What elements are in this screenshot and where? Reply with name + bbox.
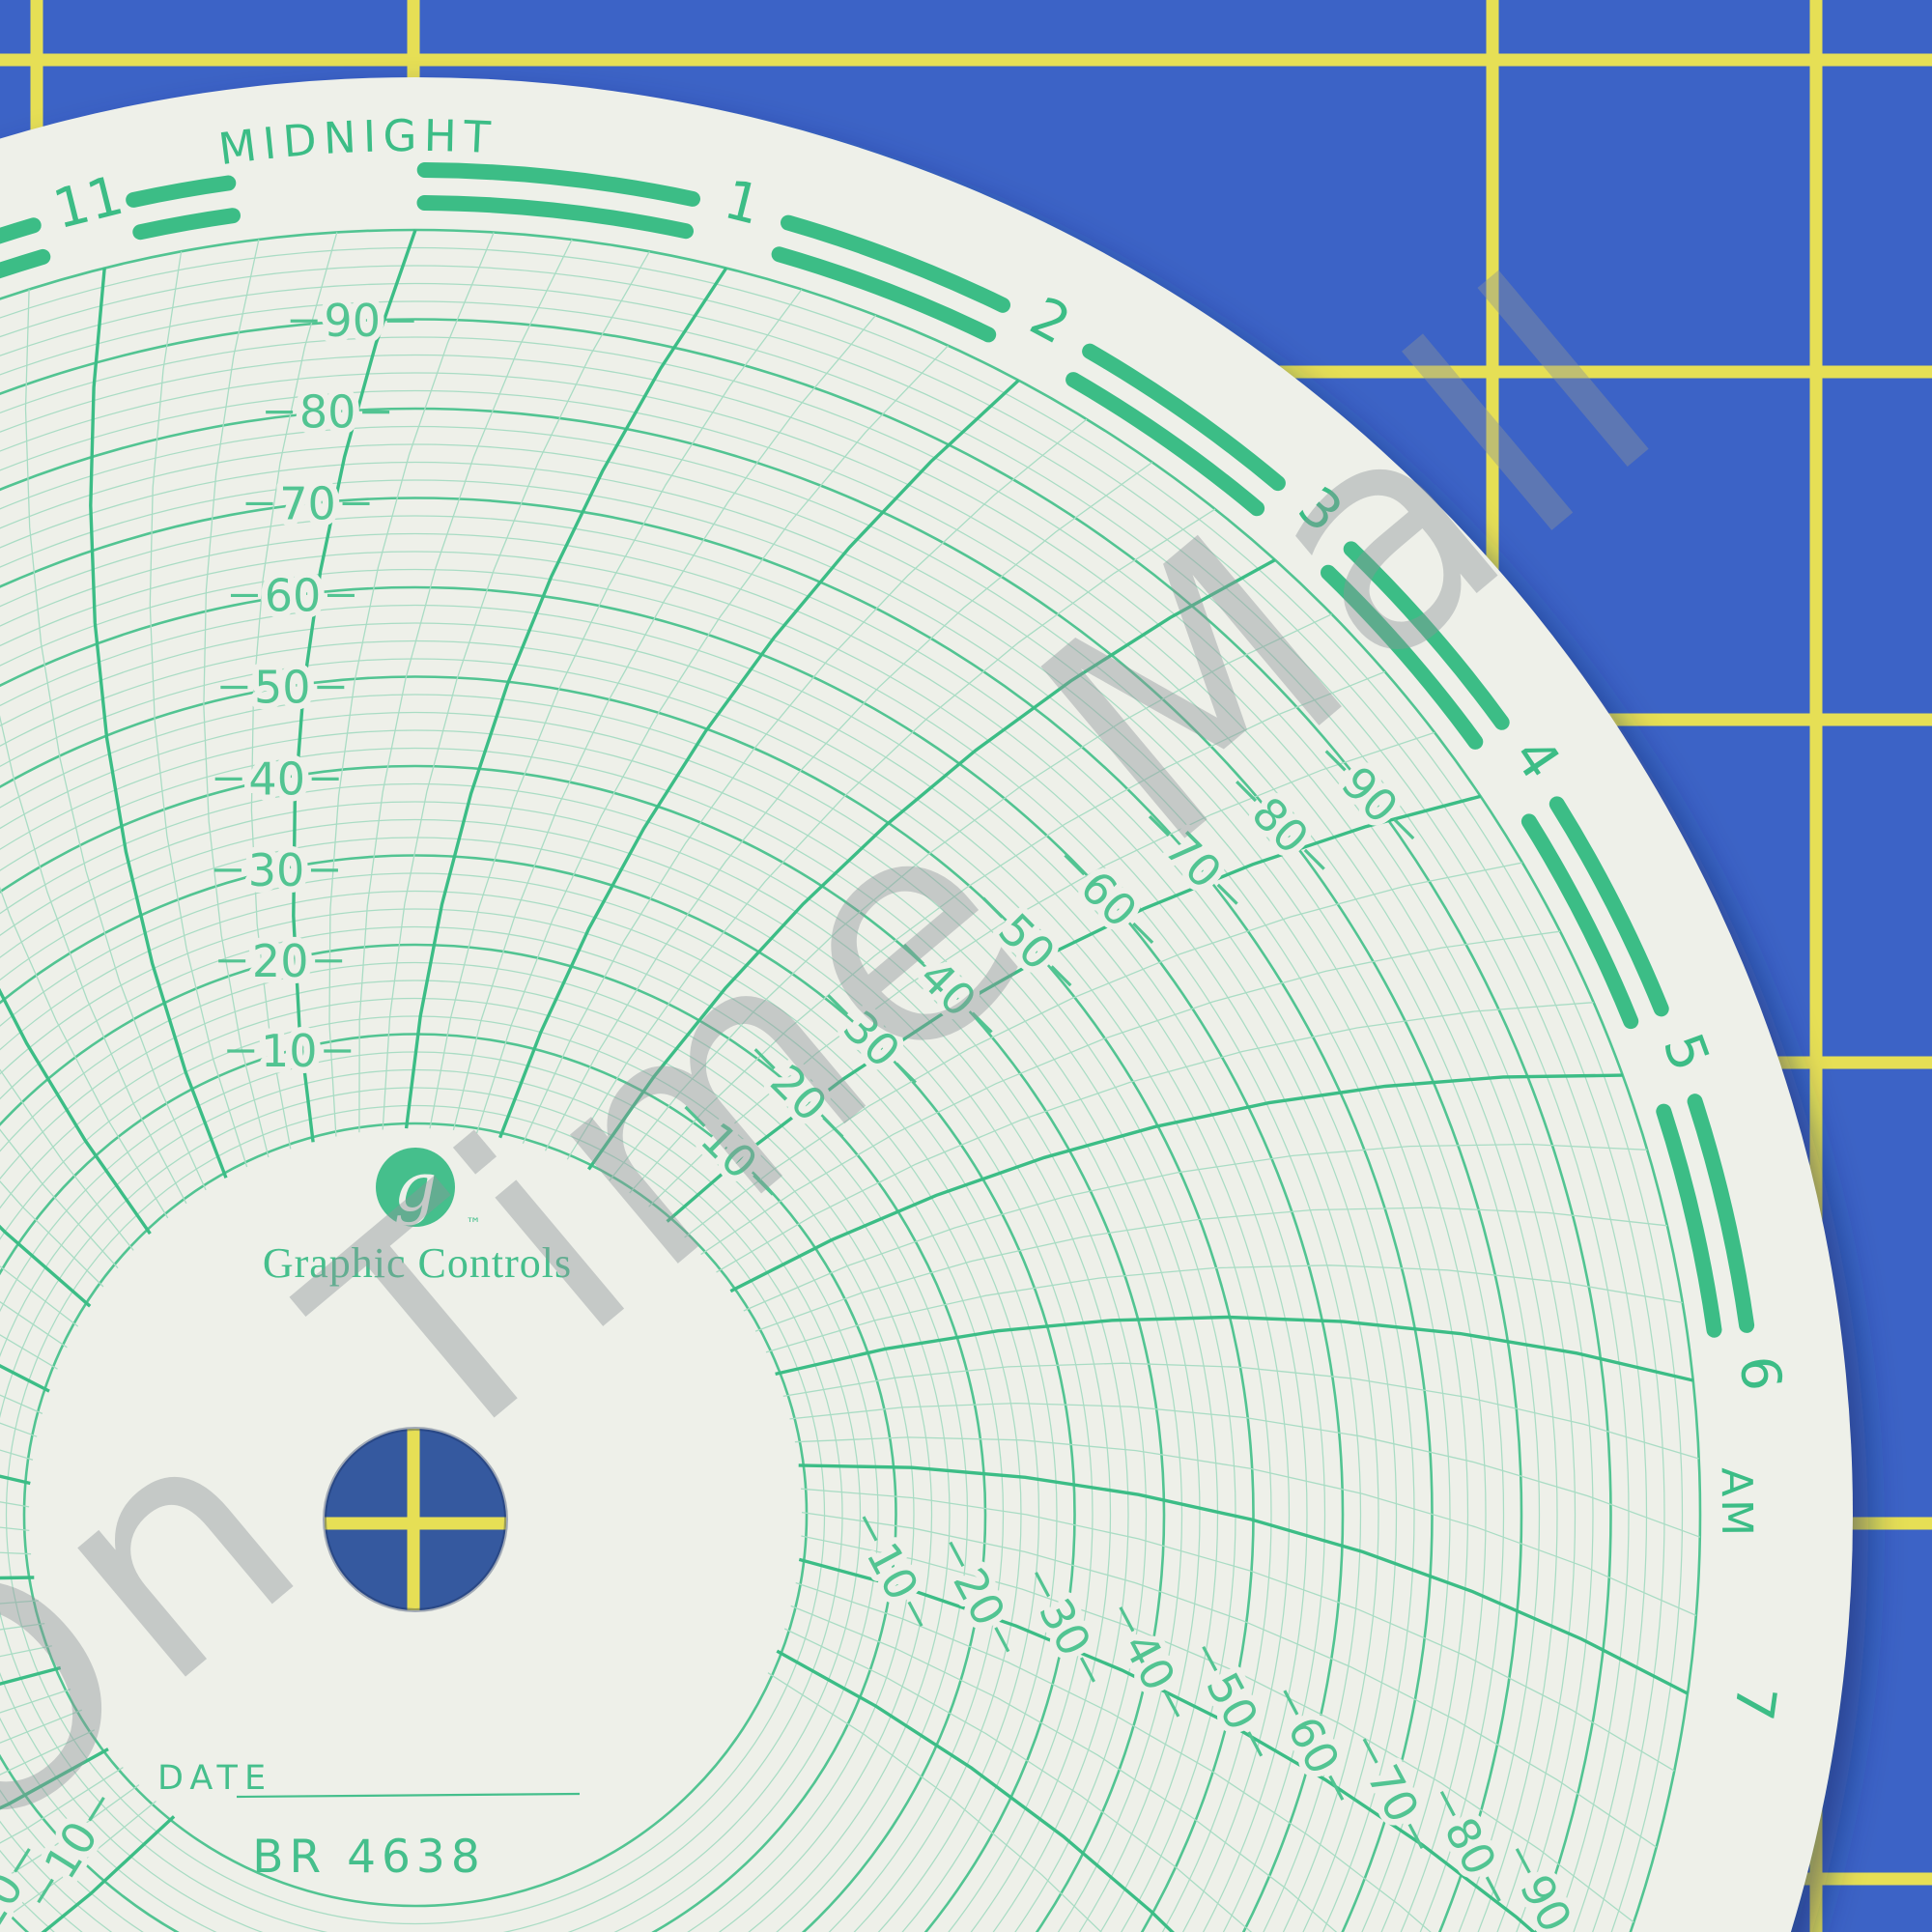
- hour-label: 6: [1727, 1353, 1793, 1394]
- model-number: BR 4638: [252, 1831, 485, 1884]
- logo-g-glyph: g: [394, 1148, 438, 1227]
- scale-value-label: 90: [324, 295, 381, 347]
- mat-grid-line-horizontal: [0, 54, 1932, 67]
- scale-value-label: 10: [261, 1025, 318, 1077]
- scale-value-label: 40: [248, 753, 305, 805]
- am-label: AM: [1712, 1467, 1762, 1540]
- scale-value-label: 30: [248, 844, 305, 896]
- scale-value-label: 80: [299, 386, 356, 439]
- scale-value-label: 20: [252, 935, 309, 987]
- date-label: DATE: [157, 1759, 272, 1798]
- scale-value-label: 70: [279, 477, 336, 529]
- scene-svg: MIDNIGHT111234567AM102030405060708090102…: [0, 0, 1932, 1932]
- scale-value-label: 50: [254, 662, 311, 714]
- photo-scene: MIDNIGHT111234567AM102030405060708090102…: [0, 0, 1932, 1932]
- trademark-symbol: ™: [466, 1214, 481, 1233]
- brand-name: Graphic Controls: [263, 1239, 572, 1287]
- hole-crosshair-horizontal: [319, 1518, 512, 1530]
- scale-value-label: 60: [265, 569, 322, 621]
